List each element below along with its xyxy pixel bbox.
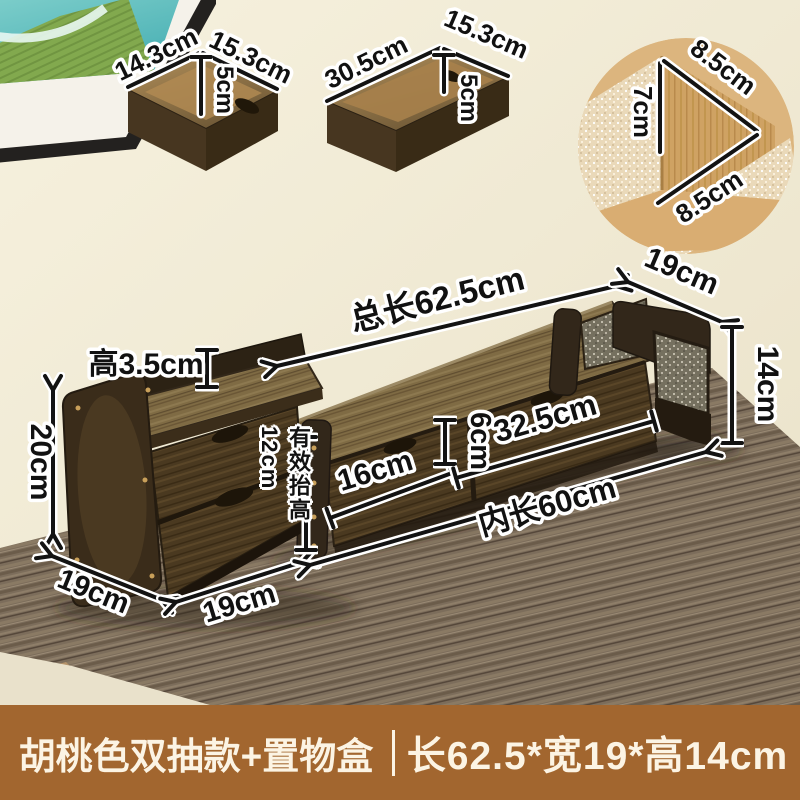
dim-left-height: 20cm — [24, 424, 57, 501]
dim-box-long-height: 5cm — [455, 74, 482, 122]
product-photo: 14.3cm 15.3cm 5cm 30.5cm 15.3cm 5cm 7cm … — [0, 0, 800, 800]
banner-title: 胡桃色双抽款+置物盒 — [0, 726, 392, 780]
dim-inset-height: 7cm — [628, 86, 658, 138]
scene-illustration: 14.3cm 15.3cm 5cm 30.5cm 15.3cm 5cm 7cm … — [0, 0, 800, 705]
dim-right-height: 14cm — [751, 346, 784, 423]
dim-box-small-height: 5cm — [211, 66, 238, 114]
banner-size: 长62.5*宽19*高14cm — [395, 725, 800, 781]
bottom-banner: 胡桃色双抽款+置物盒 长62.5*宽19*高14cm — [0, 705, 800, 800]
dim-rail-height: 高3.5cm — [88, 348, 203, 381]
dim-riser-height: 有效抬高12cm — [256, 426, 314, 576]
